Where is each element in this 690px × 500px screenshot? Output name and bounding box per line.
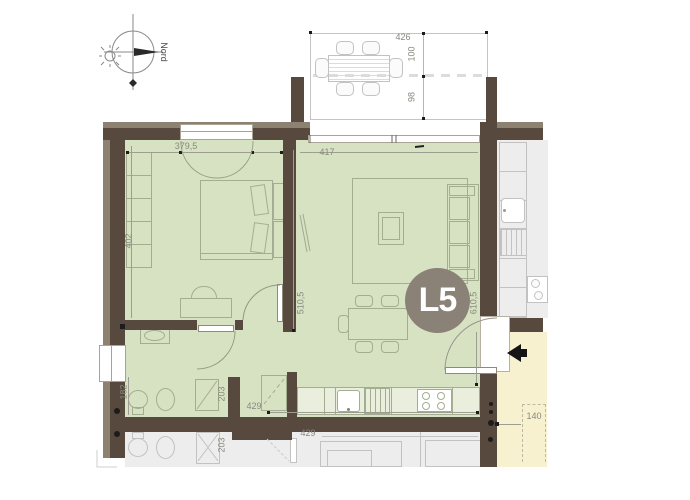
dim-kitchen-run: 429	[236, 401, 272, 411]
unit-label: L5	[419, 281, 457, 320]
dim-bedroom-depth: 402	[125, 233, 134, 248]
dim-balcony-depth-upper: 100	[408, 46, 417, 61]
compass-south-diamond	[129, 79, 137, 87]
dim-corridor-width: 140	[516, 411, 552, 421]
corner-mark	[97, 450, 117, 467]
compass-label: Nord	[159, 42, 169, 62]
dim-bathroom-width: 182	[120, 384, 129, 399]
vent-mark	[415, 146, 424, 147]
overlay-graphics	[0, 0, 690, 500]
dim-neighbor-kitchen-run: 429	[290, 428, 326, 438]
dim-living-depth-left: 510,5	[297, 292, 306, 315]
floor-plan: L5 Nord 426 100 98 379,5 402 417 510,5 6…	[0, 0, 690, 500]
dim-living-depth-right: 610,5	[470, 292, 479, 315]
sun-rays	[99, 45, 121, 67]
dim-bedroom-width: 379,5	[168, 141, 204, 151]
dim-balcony-depth-lower: 98	[408, 92, 417, 102]
dim-neighbor-bath-depth: 203	[218, 437, 227, 452]
dim-balcony-width: 426	[385, 32, 421, 42]
unit-badge: L5	[405, 268, 470, 333]
compass-needle-icon	[134, 48, 159, 56]
curtain-arc	[217, 141, 253, 178]
bedroom-door-arc	[243, 285, 280, 320]
neighbor-door-arc	[267, 439, 289, 461]
mirror	[300, 214, 310, 252]
neighbor-shower-diagonal	[198, 434, 218, 461]
bathroom-door-arc	[197, 331, 235, 369]
window-mullion	[310, 135, 396, 143]
shower-diagonal	[197, 381, 217, 409]
dim-bathroom-depth: 203	[218, 386, 227, 401]
entrance-arrow-icon	[507, 344, 527, 362]
dim-living-width: 417	[309, 147, 345, 157]
